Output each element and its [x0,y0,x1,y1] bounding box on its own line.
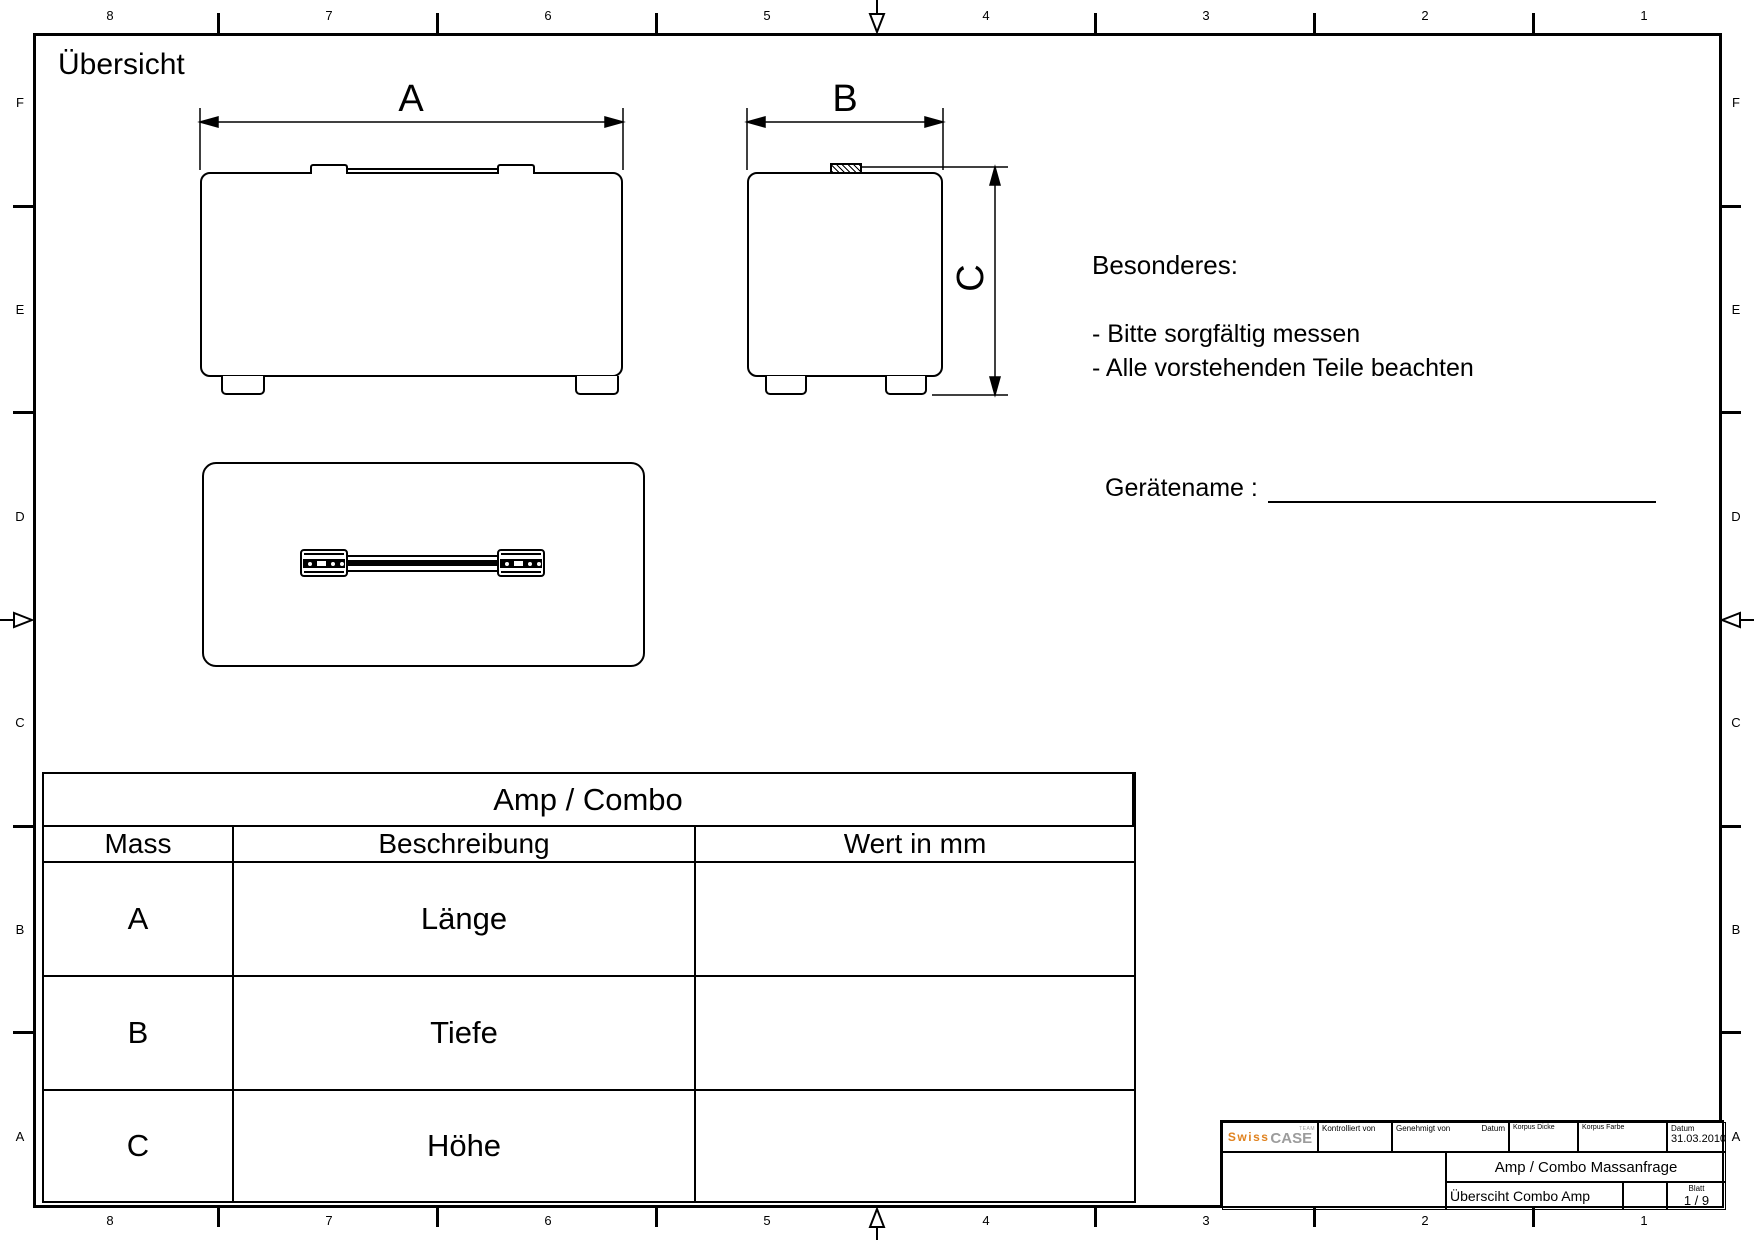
datum-label: Datum [1481,1124,1505,1150]
document-title-cell: Amp / Combo Massanfrage [1446,1152,1726,1182]
dimension-b-label: B [820,78,870,121]
center-mark-left [0,613,32,627]
sheet-name: Übersciht Combo Amp [1450,1188,1590,1204]
logo-team-text: TEAM [1299,1126,1315,1132]
dimension-c-label: C [950,253,1000,303]
blatt-cell: Blatt 1 / 9 [1667,1182,1726,1210]
handle-bar-front [346,168,499,174]
korpus-farbe-cell: Korpus Farbe [1578,1122,1667,1152]
dimension-a-label: A [386,78,436,121]
cap-band [500,559,542,568]
device-name-blank-line[interactable] [1268,475,1656,503]
case-foot [765,376,807,395]
document-title: Amp / Combo Massanfrage [1495,1159,1678,1176]
row-b-mass: B [44,977,234,1091]
case-foot [221,376,265,395]
notes-block: Besonderes: - Bitte sorgfältig messen - … [1092,250,1474,385]
sheet-name-cell: Übersciht Combo Amp [1446,1182,1623,1210]
logo-case-text: CASE [1270,1130,1312,1147]
handle-end-side [830,163,862,174]
case-foot [575,376,619,395]
title-block-empty-cell [1222,1152,1446,1210]
handle-bar-fill [348,560,497,566]
case-foot [885,376,927,395]
row-a-wert-cell[interactable] [696,863,1134,977]
row-b-wert-cell[interactable] [696,977,1134,1091]
cap-detail [501,553,541,555]
cap-detail [501,571,541,573]
datum-cell: Datum 31.03.2010 [1667,1122,1726,1152]
drawing-sheet: { "sheet": { "title": "Übersicht" }, "bo… [0,0,1754,1240]
korpus-farbe-label: Korpus Farbe [1582,1124,1624,1131]
row-a-beschreibung: Länge [234,863,696,977]
handle-bracket [310,164,348,174]
row-a-mass: A [44,863,234,977]
cap-detail [304,553,344,555]
blatt-value: 1 / 9 [1671,1193,1722,1208]
korpus-dicke-label: Korpus Dicke [1513,1124,1555,1131]
logo-swiss-text: Swiss [1228,1130,1270,1144]
table-title: Amp / Combo [44,774,1134,827]
title-block: SwissCASETEAM Kontrolliert von Genehmigt… [1220,1120,1724,1208]
handle-bracket [497,164,535,174]
kontrolliert-von-label: Kontrolliert von [1322,1124,1375,1133]
row-c-wert-cell[interactable] [696,1091,1134,1201]
cap-band [303,559,345,568]
cap-detail [304,571,344,573]
center-mark-bottom [870,1209,884,1240]
center-mark-top [870,0,884,32]
datum-label: Datum [1671,1124,1722,1133]
blatt-label: Blatt [1671,1184,1722,1193]
korpus-dicke-cell: Korpus Dicke [1509,1122,1578,1152]
genehmigt-von-cell: Genehmigt von Datum [1392,1122,1509,1152]
column-header-wert: Wert in mm [696,827,1134,863]
case-side-view [747,172,943,377]
row-c-beschreibung: Höhe [234,1091,696,1201]
datum-value: 31.03.2010 [1671,1133,1722,1145]
handle-end-cap [497,549,545,577]
case-front-view [200,172,623,377]
notes-heading: Besonderes: [1092,250,1474,281]
swisscase-logo: SwissCASETEAM [1222,1122,1318,1152]
genehmigt-von-label: Genehmigt von [1396,1124,1450,1150]
handle-bar-top [346,555,499,572]
device-name-row: Gerätename : [1105,474,1656,503]
row-c-mass: C [44,1091,234,1201]
center-mark-right [1722,613,1754,627]
title-block-empty-cell [1623,1182,1667,1210]
note-item: - Bitte sorgfältig messen [1092,317,1474,351]
row-b-beschreibung: Tiefe [234,977,696,1091]
column-header-beschreibung: Beschreibung [234,827,696,863]
kontrolliert-von-cell: Kontrolliert von [1318,1122,1392,1152]
device-name-label: Gerätename : [1105,474,1258,502]
measurement-table: Amp / Combo Mass Beschreibung Wert in mm… [42,772,1136,1203]
page-title: Übersicht [58,48,185,82]
handle-end-cap [300,549,348,577]
column-header-mass: Mass [44,827,234,863]
note-item: - Alle vorstehenden Teile beachten [1092,351,1474,385]
